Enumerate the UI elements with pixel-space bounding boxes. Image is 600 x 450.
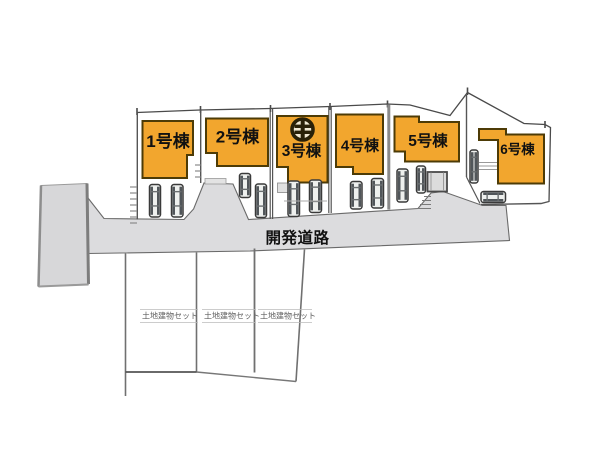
svg-text:4号棟: 4号棟 [341, 137, 380, 155]
svg-text:3号棟: 3号棟 [282, 141, 322, 160]
svg-text:土地建物セット: 土地建物セット [142, 311, 198, 321]
svg-text:5号棟: 5号棟 [408, 131, 448, 150]
svg-text:6号棟: 6号棟 [500, 141, 535, 157]
svg-text:土地建物セット: 土地建物セット [204, 311, 260, 321]
svg-text:2号棟: 2号棟 [216, 127, 260, 147]
svg-text:開発道路: 開発道路 [265, 228, 329, 247]
svg-text:土地建物セット: 土地建物セット [260, 311, 316, 321]
svg-text:1号棟: 1号棟 [146, 131, 190, 151]
